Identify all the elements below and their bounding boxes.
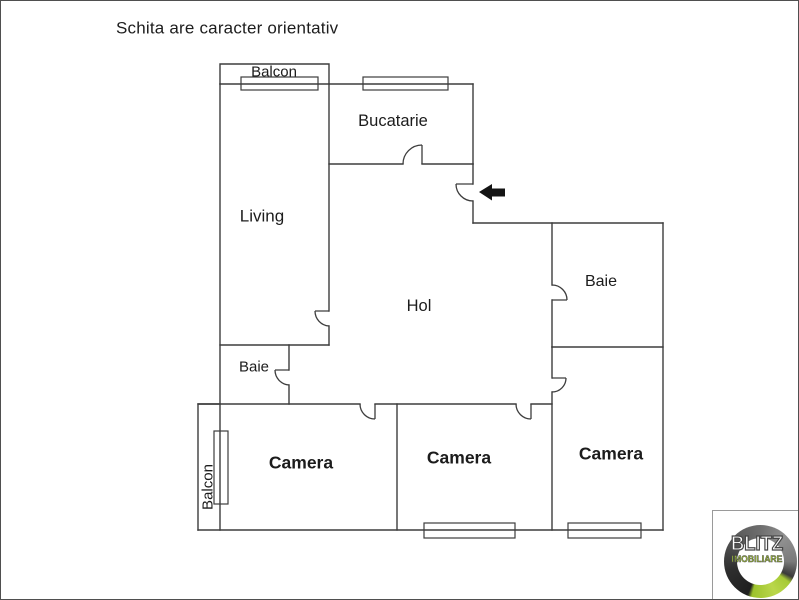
agency-logo: BLITZ IMOBILIARE [712,510,799,600]
logo-subbrand-name: IMOBILIARE [729,555,783,564]
door-bath [552,285,567,300]
door-small-bath [275,370,289,385]
doors [275,145,567,419]
room-label-balcon-bottom: Balcon [201,464,216,510]
door-living [315,311,329,326]
door-camera2 [516,404,531,419]
room-label-baie: Baie [585,274,617,290]
logo-text: BLITZ IMOBILIARE [728,534,785,564]
floor-plan-image: Schita are caracter orientativ Balcon Bu… [0,0,799,600]
room-label-balcon-top: Balcon [251,65,297,80]
door-entrance [456,184,473,201]
room-label-camera-2: Camera [427,449,491,467]
plan-disclaimer-title: Schita are caracter orientativ [116,20,338,37]
room-label-hol: Hol [407,298,432,315]
room-label-bucatarie: Bucatarie [358,113,428,130]
room-label-camera-1: Camera [269,454,333,472]
door-camera3 [552,378,566,392]
room-label-baie-mica: Baie [239,360,269,375]
logo-brand-name: BLITZ [730,534,782,554]
entrance-arrow-icon [479,184,505,201]
floor-plan-drawing [1,1,799,600]
room-label-camera-3: Camera [579,445,643,463]
room-label-living: Living [240,208,284,225]
door-camera1 [360,404,375,419]
door-kitchen [403,145,422,164]
